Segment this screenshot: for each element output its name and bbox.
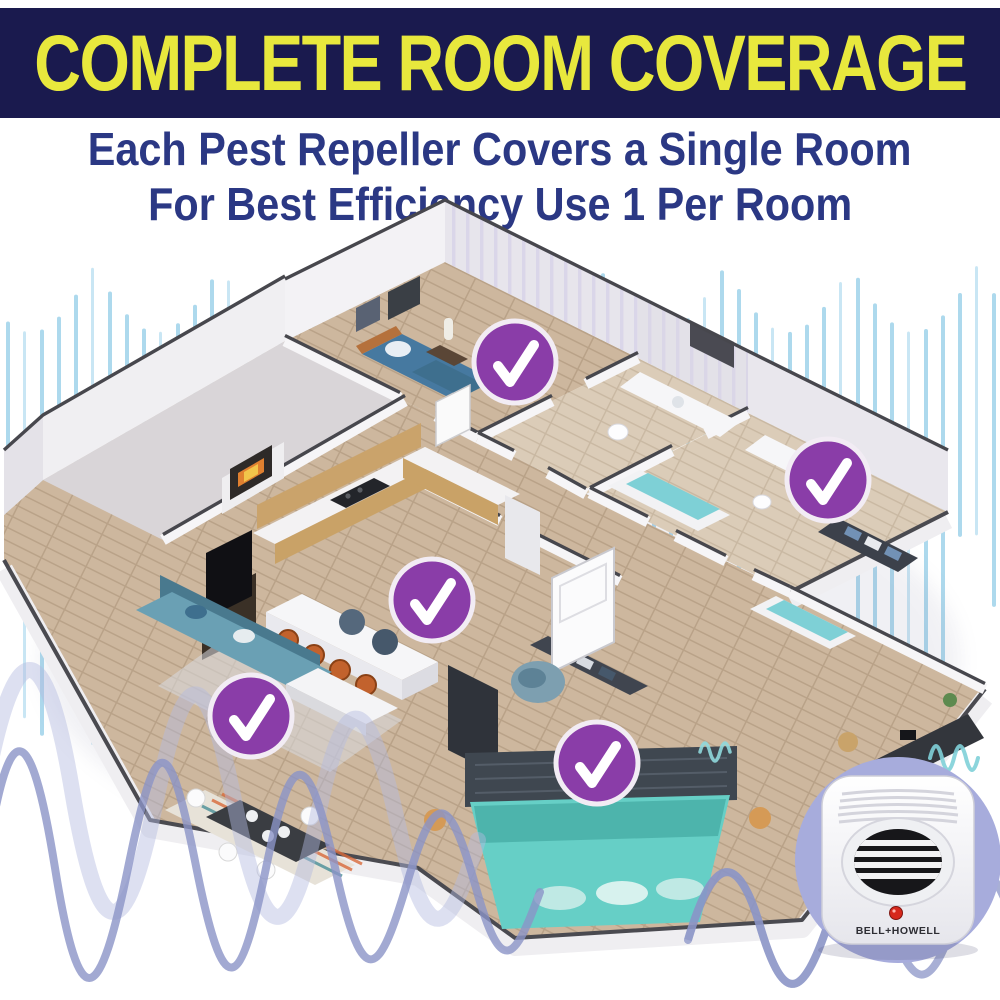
toilet (608, 424, 628, 440)
stool (749, 807, 771, 829)
sound-wave-bar (975, 266, 978, 535)
sofa-pillow (233, 629, 255, 643)
sound-wave-bar (992, 293, 996, 607)
device-brand-label: BELL+HOWELL (856, 925, 941, 937)
pillow (596, 881, 648, 905)
dining-chair (219, 843, 237, 861)
pillow (385, 341, 411, 357)
dining-chair (187, 789, 205, 807)
marketing-image: COMPLETE ROOM COVERAGE Each Pest Repelle… (0, 0, 1000, 1000)
coverage-check-badge-kitchen (391, 559, 473, 641)
coverage-check-badge-living-room (210, 675, 292, 757)
coverage-check-badge-master-bathroom (787, 439, 869, 521)
coverage-check-badge-bottom-bedroom (556, 722, 638, 804)
led-indicator (890, 907, 903, 920)
coverage-check-badge-top-bedroom (474, 321, 556, 403)
scene-graphic: BELL+HOWELL (0, 0, 1000, 1000)
pouf (339, 609, 365, 635)
sound-wave-bar (958, 293, 962, 537)
pillow (656, 878, 704, 900)
toilet (753, 495, 771, 509)
plant (943, 693, 957, 707)
desk-chair (838, 732, 858, 752)
sofa-pillow (185, 605, 207, 619)
pouf (372, 629, 398, 655)
lamp (444, 318, 453, 340)
